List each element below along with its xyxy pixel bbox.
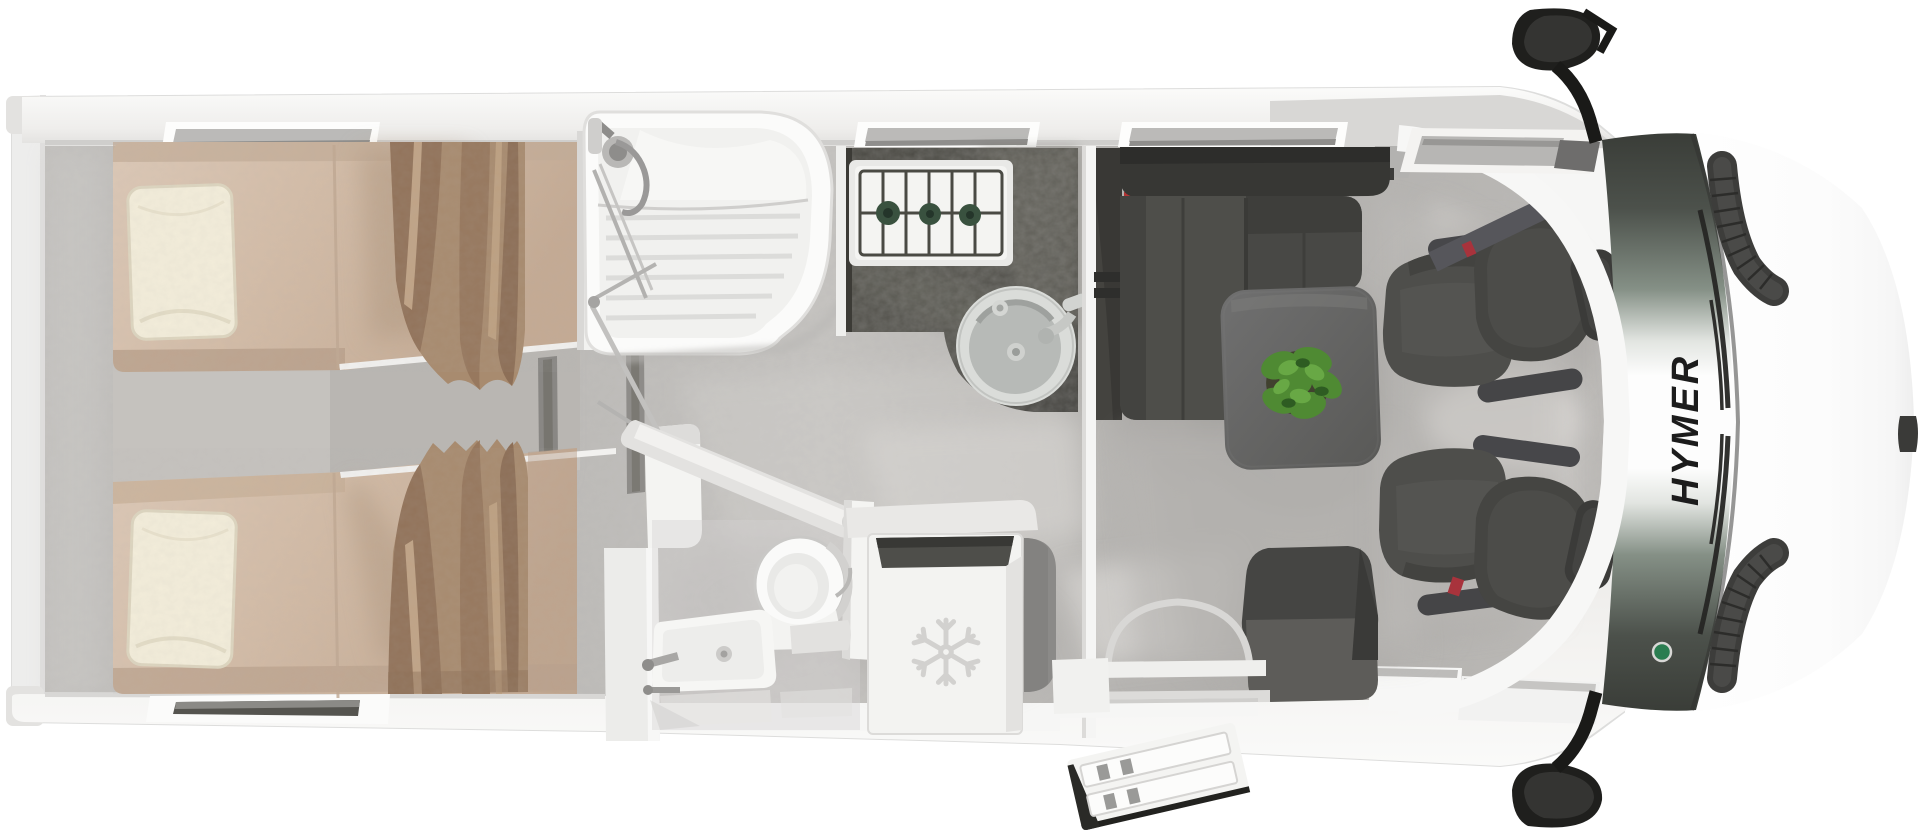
- svg-text:HYMER: HYMER: [1665, 354, 1707, 506]
